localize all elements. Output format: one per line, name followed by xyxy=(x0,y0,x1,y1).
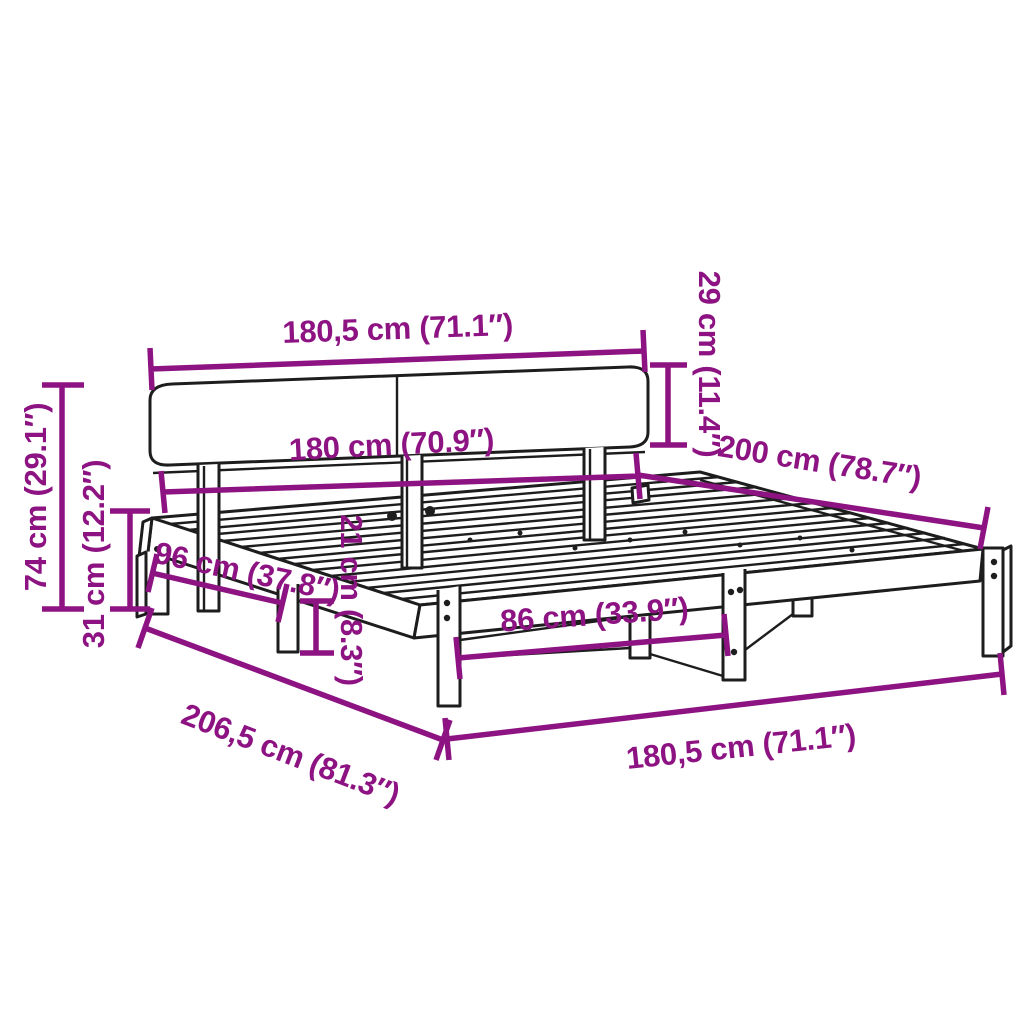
screw-icon xyxy=(444,615,450,621)
screw-icon xyxy=(991,573,997,579)
bolt-icon xyxy=(387,511,397,521)
screw-icon xyxy=(731,649,737,655)
bed-frame-dimension-diagram: 180,5 cm (71.1″) 29 cm (11.4″) 180 cm (7… xyxy=(0,0,1024,1024)
slat-screw-icon xyxy=(468,538,473,543)
slat-screw-icon xyxy=(798,536,803,541)
headboard-post-right xyxy=(584,447,605,540)
bolt-icon xyxy=(425,506,435,516)
slat-screw-icon xyxy=(573,546,578,551)
screw-icon xyxy=(991,559,997,565)
dimension-label-base-height: 31 cm (12.2″) xyxy=(76,460,111,648)
diagram-canvas: 180,5 cm (71.1″) 29 cm (11.4″) 180 cm (7… xyxy=(0,0,1024,1024)
screw-icon xyxy=(444,600,450,606)
dimension-label-bottom-width: 180,5 cm (71.1″) xyxy=(624,717,857,776)
slat-screw-icon xyxy=(683,530,688,535)
dimension-label-top-width: 180,5 cm (71.1″) xyxy=(282,307,514,350)
screw-icon xyxy=(737,587,743,593)
slat-screw-icon xyxy=(628,538,633,543)
dimension-line-headboard-height xyxy=(650,365,687,445)
slat-screw-icon xyxy=(518,531,523,536)
bed-frame xyxy=(137,367,1011,706)
headboard-post-middle xyxy=(402,455,422,568)
dimension-label-rail-height: 21 cm (8.3″) xyxy=(334,514,369,686)
screw-icon xyxy=(728,589,734,595)
slat-screw-icon xyxy=(738,543,743,548)
slat-screw-icon xyxy=(850,548,855,553)
dimension-label-total-height: 74 cm (29.1″) xyxy=(18,403,53,591)
